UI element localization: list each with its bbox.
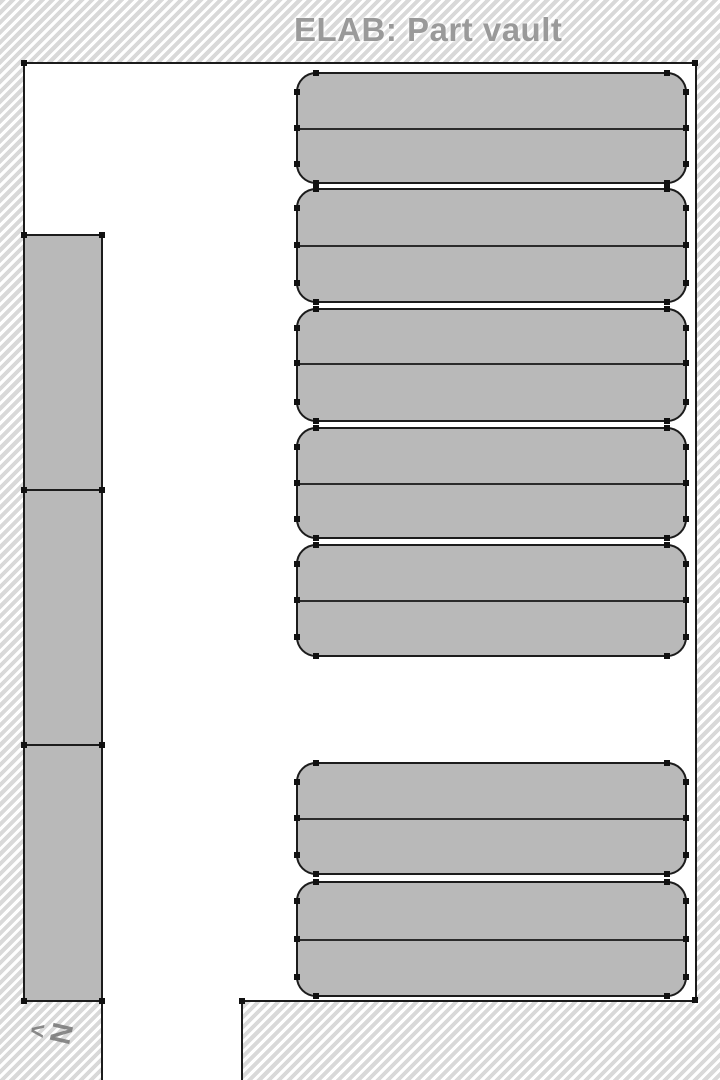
floorplan-canvas: ELAB: Part vault < N (0, 0, 720, 1080)
vertex-marker (294, 242, 300, 248)
vertex-marker (683, 516, 689, 522)
vertex-marker (313, 425, 319, 431)
vertex-marker (294, 161, 300, 167)
vertex-marker (294, 634, 300, 640)
vertex-marker (683, 898, 689, 904)
vertex-marker (313, 186, 319, 192)
vertex-marker (683, 125, 689, 131)
rack-section[interactable] (23, 744, 103, 1002)
vertex-marker (294, 125, 300, 131)
vertex-marker (664, 760, 670, 766)
vertex-marker (313, 535, 319, 541)
vertex-marker (313, 653, 319, 659)
vertex-marker (21, 742, 27, 748)
vertex-marker (683, 360, 689, 366)
vertex-marker (313, 879, 319, 885)
vertex-marker (21, 487, 27, 493)
vertex-marker (294, 360, 300, 366)
shelf-divider (298, 483, 685, 485)
shelf-divider (298, 245, 685, 247)
vertex-marker (683, 89, 689, 95)
vertex-marker (294, 936, 300, 942)
vertex-marker (664, 542, 670, 548)
vertex-marker (21, 998, 27, 1004)
vertex-marker (239, 998, 245, 1004)
vertex-marker (313, 306, 319, 312)
map-title: ELAB: Part vault (294, 11, 562, 49)
corridor-opening (101, 999, 243, 1080)
vertex-marker (683, 634, 689, 640)
vertex-marker (294, 898, 300, 904)
vertex-marker (313, 70, 319, 76)
vertex-marker (294, 89, 300, 95)
rack-section[interactable] (23, 489, 103, 746)
vertex-marker (683, 779, 689, 785)
vertex-marker (664, 879, 670, 885)
vertex-marker (313, 871, 319, 877)
vertex-marker (683, 399, 689, 405)
vertex-marker (683, 325, 689, 331)
vertex-marker (294, 325, 300, 331)
vertex-marker (683, 974, 689, 980)
vertex-marker (692, 60, 698, 66)
vertex-marker (683, 205, 689, 211)
shelf-divider (298, 363, 685, 365)
vertex-marker (664, 993, 670, 999)
shelf-divider (298, 600, 685, 602)
vertex-marker (294, 205, 300, 211)
vertex-marker (683, 280, 689, 286)
vertex-marker (21, 60, 27, 66)
vertex-marker (664, 871, 670, 877)
vertex-marker (683, 852, 689, 858)
vertex-marker (313, 299, 319, 305)
vertex-marker (99, 998, 105, 1004)
vertex-marker (683, 815, 689, 821)
vertex-marker (683, 444, 689, 450)
vertex-marker (683, 161, 689, 167)
vertex-marker (294, 480, 300, 486)
vertex-marker (683, 480, 689, 486)
north-letter: N (43, 1020, 76, 1047)
shelf-divider (298, 939, 685, 941)
vertex-marker (313, 993, 319, 999)
vertex-marker (294, 815, 300, 821)
vertex-marker (664, 418, 670, 424)
shelf-divider (298, 128, 685, 130)
vertex-marker (664, 299, 670, 305)
vertex-marker (313, 760, 319, 766)
vertex-marker (99, 232, 105, 238)
vertex-marker (664, 653, 670, 659)
vertex-marker (294, 280, 300, 286)
shelf-unit[interactable] (296, 308, 687, 422)
vertex-marker (294, 561, 300, 567)
vertex-marker (21, 232, 27, 238)
vertex-marker (664, 306, 670, 312)
vertex-marker (313, 542, 319, 548)
vertex-marker (664, 535, 670, 541)
vertex-marker (294, 852, 300, 858)
vertex-marker (664, 186, 670, 192)
vertex-marker (683, 561, 689, 567)
vertex-marker (692, 997, 698, 1003)
vertex-marker (294, 444, 300, 450)
vertex-marker (683, 936, 689, 942)
vertex-marker (294, 779, 300, 785)
north-compass: < N (27, 1013, 82, 1060)
vertex-marker (294, 516, 300, 522)
vertex-marker (99, 487, 105, 493)
vertex-marker (294, 399, 300, 405)
vertex-marker (99, 742, 105, 748)
vertex-marker (683, 242, 689, 248)
shelf-divider (298, 818, 685, 820)
vertex-marker (294, 974, 300, 980)
vertex-marker (664, 70, 670, 76)
vertex-marker (294, 597, 300, 603)
rack-section[interactable] (23, 234, 103, 491)
vertex-marker (664, 425, 670, 431)
vertex-marker (683, 597, 689, 603)
vertex-marker (313, 418, 319, 424)
